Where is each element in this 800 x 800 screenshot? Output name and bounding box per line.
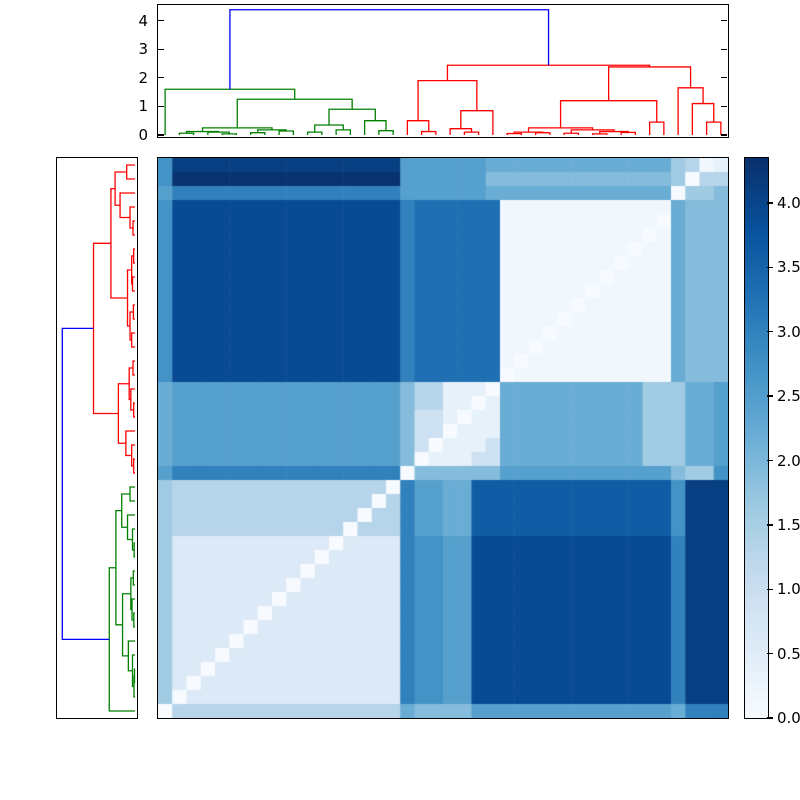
colorbar-tick-label: 2.5 (777, 387, 800, 405)
heatmap (158, 158, 728, 718)
colorbar (744, 157, 769, 719)
left-dendrogram-plot (57, 158, 137, 718)
colorbar-tick-label: 0.5 (777, 645, 800, 663)
top-axis-tick-label: 4 (108, 12, 148, 30)
top-axis-tick-label: 0 (108, 126, 148, 144)
colorbar-tick-mark (767, 202, 773, 203)
heatmap-axes (157, 157, 729, 719)
colorbar-tick-mark (767, 589, 773, 590)
top-axis-tick-mark (158, 20, 164, 21)
colorbar-gradient (745, 158, 768, 718)
top-axis-tick-mark (158, 134, 164, 135)
left-dendrogram-axes (56, 157, 138, 719)
top-axis-tick-mark (721, 49, 727, 50)
top-axis-tick-label: 2 (108, 69, 148, 87)
colorbar-tick-mark (767, 267, 773, 268)
colorbar-tick-label: 2.0 (777, 452, 800, 470)
top-axis-tick-mark (721, 77, 727, 78)
top-axis-tick-mark (158, 77, 164, 78)
colorbar-tick-label: 1.0 (777, 580, 800, 598)
colorbar-tick-label: 3.5 (777, 258, 800, 276)
colorbar-tick-label: 4.0 (777, 194, 800, 212)
top-axis-tick-mark (721, 134, 727, 135)
colorbar-tick-mark (767, 653, 773, 654)
top-axis-tick-mark (158, 106, 164, 107)
top-axis-tick-mark (721, 106, 727, 107)
top-axis-tick-label: 3 (108, 40, 148, 58)
colorbar-tick-label: 3.0 (777, 323, 800, 341)
top-axis-tick-mark (721, 20, 727, 21)
colorbar-tick-mark (767, 395, 773, 396)
top-axis-tick-label: 1 (108, 97, 148, 115)
top-axis-tick-mark (158, 49, 164, 50)
colorbar-tick-mark (767, 524, 773, 525)
top-dendrogram-plot (158, 5, 728, 137)
colorbar-tick-mark (767, 460, 773, 461)
colorbar-tick-label: 1.5 (777, 516, 800, 534)
top-dendrogram-axes (157, 4, 729, 138)
colorbar-tick-label: 0.0 (777, 709, 800, 727)
colorbar-tick-mark (767, 331, 773, 332)
colorbar-tick-mark (767, 717, 773, 718)
figure: 012340.00.51.01.52.02.53.03.54.0 (0, 0, 800, 800)
